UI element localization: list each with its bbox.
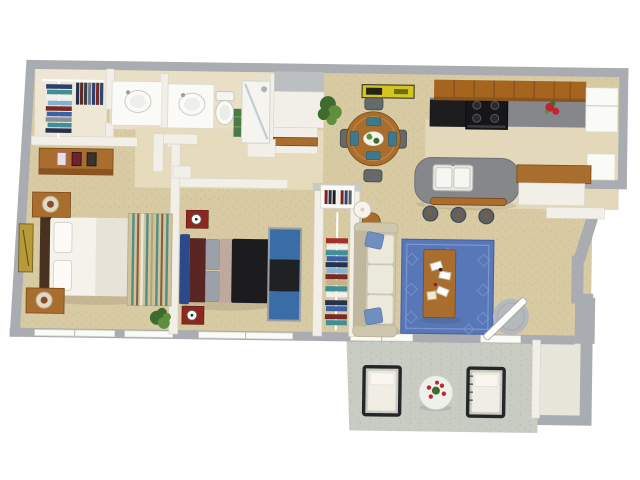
- framed-photo: [72, 153, 81, 166]
- bed-pillow-maroon: [189, 238, 206, 302]
- pillow: [54, 222, 72, 252]
- stove: [466, 96, 508, 130]
- bar-wall: [519, 183, 585, 206]
- bedroom2-north-wall: [180, 178, 288, 189]
- pillow: [53, 260, 71, 290]
- patio-storage-floor: [540, 340, 581, 418]
- wall-art-abstract: [362, 85, 414, 99]
- master-north-wall: [31, 136, 137, 146]
- bed-blanket-black: [231, 239, 270, 304]
- bedroom2-east-wall: [313, 188, 324, 336]
- pillow: [206, 239, 220, 269]
- hall-wall-step: [173, 166, 191, 178]
- patio-chair: [364, 367, 401, 415]
- wall-patio-right: [579, 294, 593, 424]
- refrigerator: [586, 88, 619, 132]
- wall-patio-bottom: [537, 415, 591, 426]
- toilet-tank: [216, 92, 234, 101]
- bulkhead: [274, 71, 324, 92]
- bed-headboard: [179, 234, 190, 304]
- striped-rug: [127, 213, 172, 306]
- oven-handle: [468, 125, 506, 128]
- coffee-table: [423, 249, 456, 317]
- bar-counter: [517, 165, 591, 184]
- framed-photo: [57, 152, 66, 165]
- entry-alcove-wall: [546, 207, 604, 219]
- half-wall-wood-cap: [273, 137, 317, 146]
- island-wood-base: [431, 198, 507, 206]
- area-rug: [267, 227, 302, 321]
- closet-shelf: [42, 80, 104, 81]
- utility-closet: [274, 91, 324, 128]
- dresser-front: [39, 168, 113, 175]
- sofa-cushion: [367, 265, 393, 294]
- window: [125, 331, 173, 338]
- throw-pillow: [364, 307, 383, 325]
- hall-wall: [153, 134, 164, 172]
- framed-photo: [87, 153, 96, 166]
- floor-plan-stage: [0, 0, 640, 480]
- patio-storage-wall: [532, 340, 541, 418]
- patio-chair: [468, 368, 505, 416]
- bed-band-tan: [219, 239, 232, 303]
- floor-plan-rendering: [0, 0, 640, 480]
- pillow: [205, 271, 219, 301]
- throw-pillow: [364, 231, 384, 249]
- island-double-sink: [433, 161, 473, 191]
- hanging-clothes: [45, 84, 72, 133]
- dishwasher: [430, 100, 466, 128]
- wall-right-kitchen: [618, 68, 629, 189]
- table-centerpiece: [363, 132, 383, 146]
